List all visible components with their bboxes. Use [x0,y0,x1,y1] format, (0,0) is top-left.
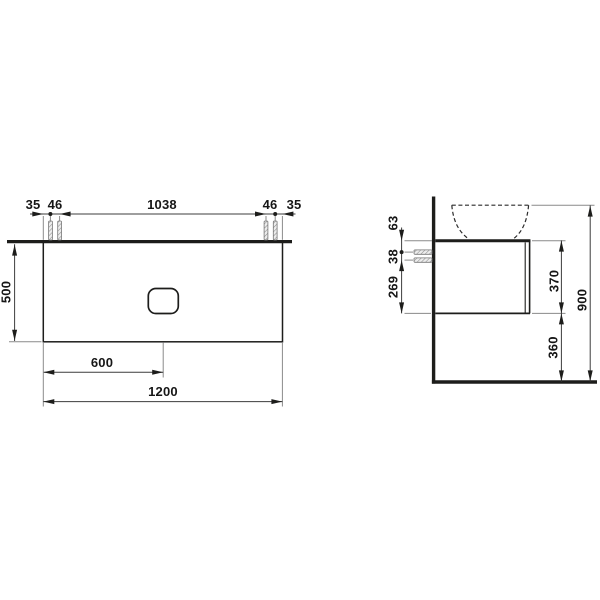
hanger-bolt-icon [273,221,277,240]
dim-label-edge-right: 35 [287,197,302,212]
dim-arrow [152,370,163,375]
dim-label-bolt-span: 1038 [147,197,177,212]
dim-arrow [559,313,564,324]
dim-label-total-height: 900 [575,289,590,311]
dim-label-body-height: 370 [547,270,562,292]
front-view: 35 46 1038 46 35 500 600 [0,197,301,407]
dim-arrow [32,212,43,217]
dim-label-bottom-clearance: 360 [546,336,561,358]
hanger-bolt-icon [49,221,53,240]
hanger-bolt-icon [58,221,62,240]
hanger-bolt-icon [414,250,432,254]
dim-label-cutout-offset: 600 [91,355,113,370]
dim-dot [273,212,277,216]
washbasin-outline [452,205,529,239]
dim-arrow [255,212,266,217]
dim-label-bolt-pair-right: 46 [263,197,278,212]
dim-height: 500 [0,244,42,342]
dim-label-bolt-to-bottom: 269 [386,276,401,298]
dim-chain-left: 63 38 269 [386,216,433,314]
cabinet-side-body [435,240,530,314]
hanger-bolt-icon [414,258,432,262]
dim-arrow [271,399,282,404]
washbasin-bowl-right [514,205,529,239]
dim-label-top-to-bolt: 63 [386,216,401,231]
dim-label-edge-left: 35 [26,197,41,212]
dim-arrow [12,245,17,256]
dim-arrow [399,230,404,241]
hanger-bolts-front [49,221,277,240]
side-view: 63 38 269 370 360 900 [386,197,598,384]
washbasin-bowl-left [452,205,469,239]
dim-total-height: 900 [532,205,595,381]
dim-arrow [60,212,71,217]
dim-label-width: 1200 [148,384,178,399]
dim-arrow [399,302,404,313]
dim-chain-top: 35 46 1038 46 35 [26,197,302,240]
dim-cutout-offset: 600 [43,343,163,378]
dim-arrow [588,206,593,217]
dim-arrow [588,370,593,381]
dim-arrow [43,399,54,404]
cabinet-front-body [43,242,282,342]
technical-drawing: 35 46 1038 46 35 500 600 [0,0,600,600]
dim-dot [48,212,52,216]
dim-arrow [559,241,564,252]
dim-arrow [559,370,564,381]
dim-arrow [43,370,54,375]
dim-label-height: 500 [0,281,14,303]
dim-arrow [282,212,293,217]
siphon-cutout [148,289,178,314]
hanger-bolts-side [414,250,432,262]
dim-label-bolt-pair-left: 46 [48,197,63,212]
dim-arrow [559,302,564,313]
dim-label-bolt-spacing: 38 [386,249,401,264]
hanger-bolt-icon [264,221,268,240]
dim-arrow [12,330,17,341]
dim-body-height-and-clearance: 370 360 [532,240,566,381]
